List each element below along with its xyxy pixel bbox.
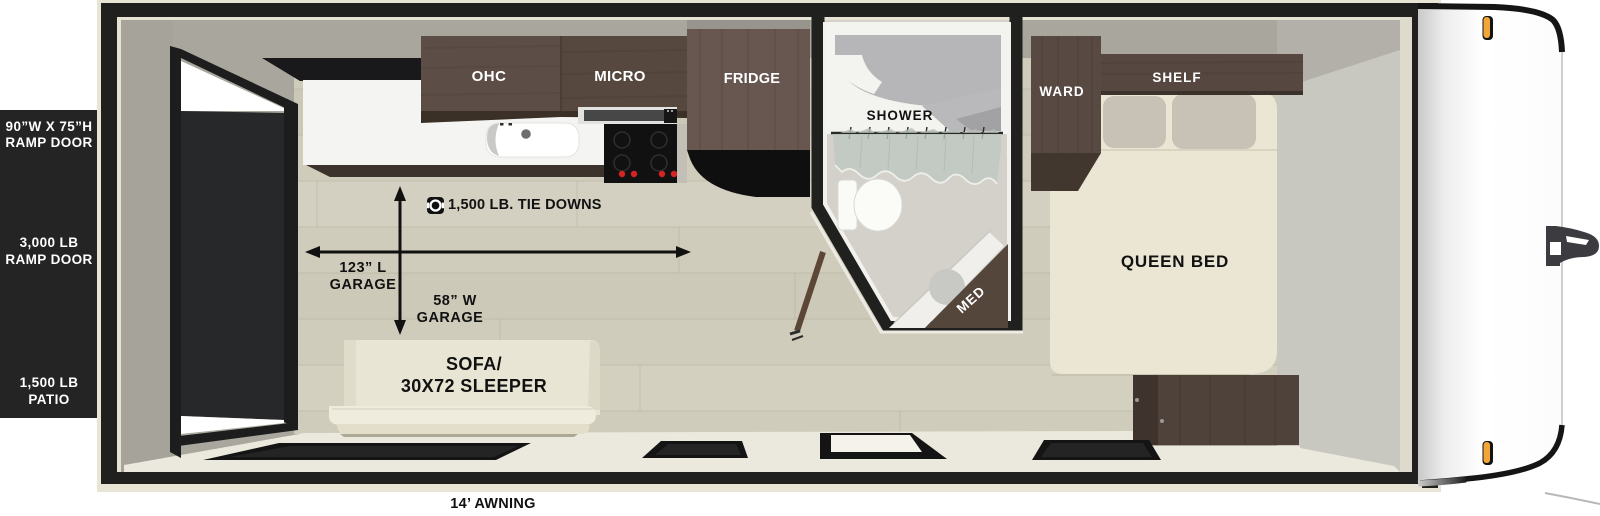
svg-text:1,500 LB: 1,500 LB: [20, 375, 79, 390]
svg-text:3,000 LB: 3,000 LB: [20, 235, 79, 250]
svg-text:GARAGE: GARAGE: [417, 310, 484, 326]
svg-text:WARD: WARD: [1039, 84, 1084, 99]
svg-text:OHC: OHC: [472, 68, 507, 85]
svg-text:123” L: 123” L: [339, 260, 386, 276]
svg-text:90”W X 75”H: 90”W X 75”H: [6, 119, 93, 134]
svg-text:1,500 LB. TIE DOWNS: 1,500 LB. TIE DOWNS: [448, 197, 602, 213]
svg-text:RAMP DOOR: RAMP DOOR: [5, 252, 92, 267]
svg-text:FRIDGE: FRIDGE: [724, 71, 781, 87]
svg-text:SHOWER: SHOWER: [867, 108, 934, 123]
svg-text:SOFA/: SOFA/: [446, 354, 502, 374]
svg-text:MICRO: MICRO: [594, 68, 646, 85]
svg-text:GARAGE: GARAGE: [330, 277, 397, 293]
svg-text:30X72 SLEEPER: 30X72 SLEEPER: [401, 376, 547, 396]
svg-text:QUEEN BED: QUEEN BED: [1121, 252, 1229, 271]
svg-text:SHELF: SHELF: [1152, 70, 1201, 85]
svg-text:RAMP DOOR: RAMP DOOR: [5, 135, 92, 150]
svg-text:14’ AWNING: 14’ AWNING: [450, 496, 535, 511]
svg-text:PATIO: PATIO: [28, 392, 69, 407]
svg-text:58” W: 58” W: [433, 293, 477, 309]
